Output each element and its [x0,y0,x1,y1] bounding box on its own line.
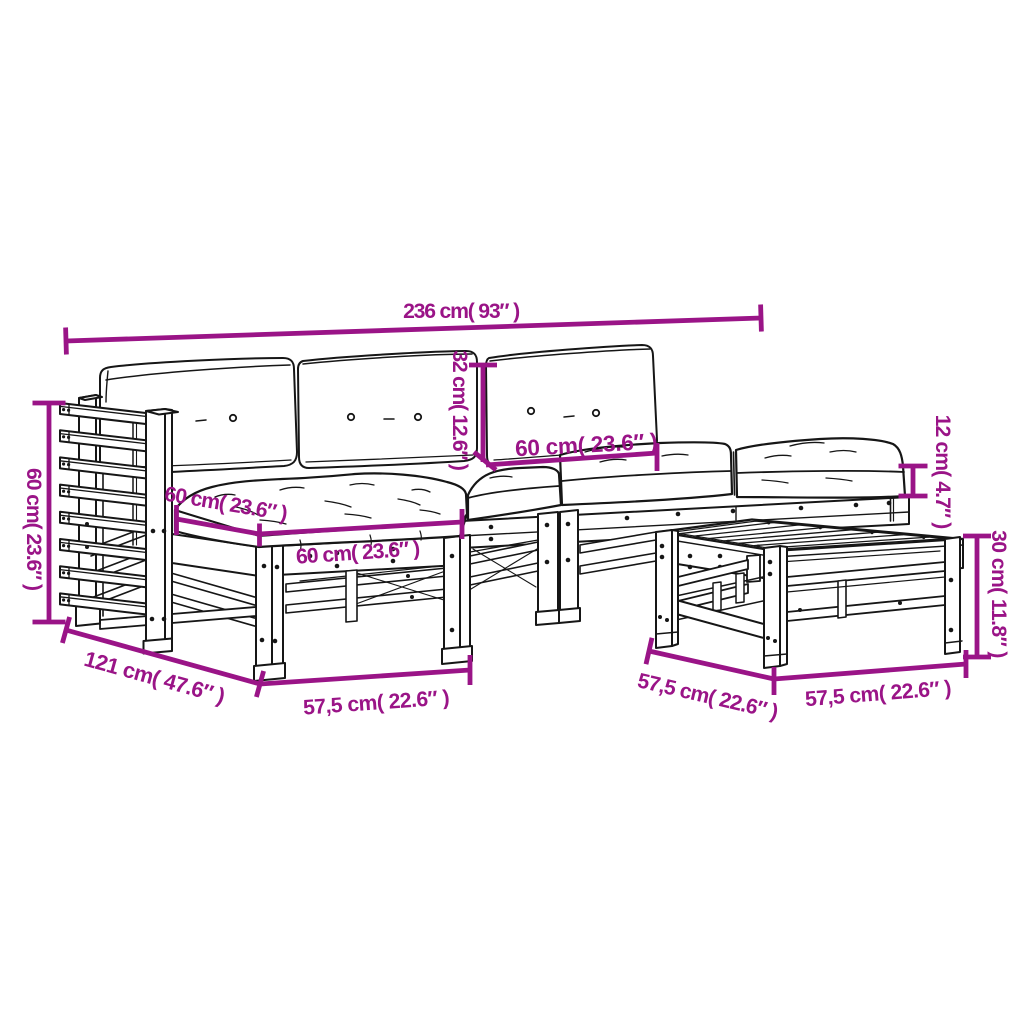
svg-text:57,5 cm( 22.6″ ): 57,5 cm( 22.6″ ) [804,677,952,711]
svg-text:60 cm( 23.6″ ): 60 cm( 23.6″ ) [22,468,45,590]
svg-text:236 cm( 93″ ): 236 cm( 93″ ) [403,300,519,323]
svg-text:32 cm( 12.6″ ): 32 cm( 12.6″ ) [448,350,471,469]
svg-text:12 cm( 4.7″ ): 12 cm( 4.7″ ) [931,415,954,529]
svg-text:57,5 cm( 22.6″ ): 57,5 cm( 22.6″ ) [302,686,449,719]
svg-text:30 cm( 11.8″ ): 30 cm( 11.8″ ) [987,530,1010,658]
